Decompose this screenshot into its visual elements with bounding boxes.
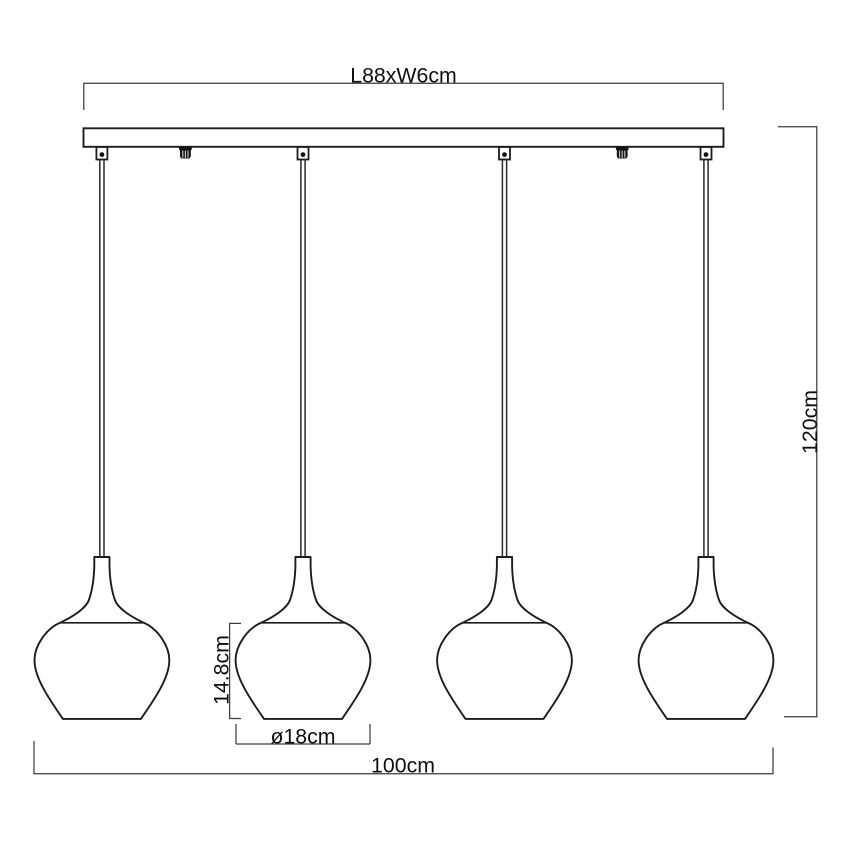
svg-text:120cm: 120cm — [798, 390, 822, 454]
svg-text:ø18cm: ø18cm — [270, 724, 335, 748]
svg-text:14.8cm: 14.8cm — [209, 635, 233, 705]
svg-text:100cm: 100cm — [371, 753, 435, 777]
svg-text:L88xW6cm: L88xW6cm — [350, 64, 457, 88]
